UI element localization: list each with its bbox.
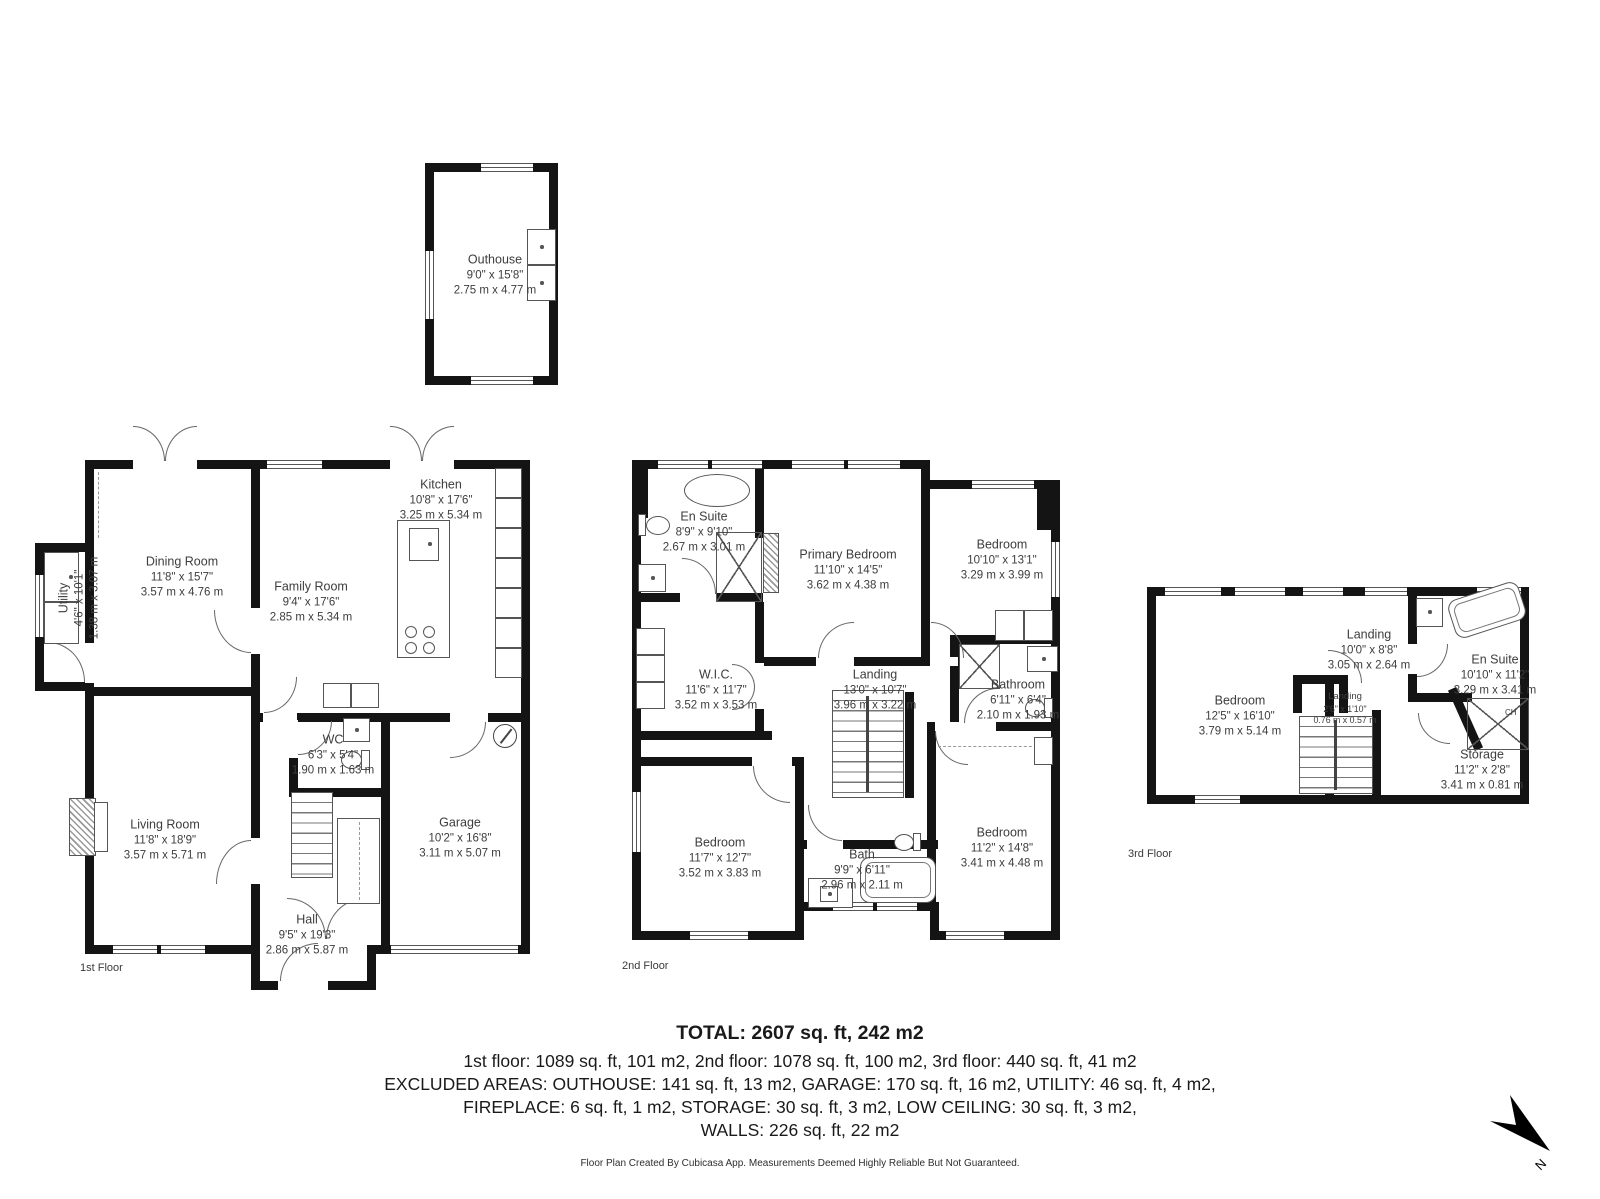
room-label-utility: Utility 4'6" x 10'1" 1.38 m x 3.07 m [56, 557, 103, 639]
room-dims-m: 3.41 m x 4.48 m [961, 856, 1043, 871]
room-label-landing: Landing 13'0" x 10'7" 3.96 m x 3.22 m [834, 667, 916, 714]
wall [755, 460, 764, 538]
room-dims-ft: 6'3" x 5'4" [308, 748, 358, 763]
room-dims-m: 3.57 m x 4.76 m [141, 585, 223, 600]
room-dims-m: 3.25 m x 5.34 m [400, 508, 482, 523]
room-name: Landing [1347, 627, 1392, 644]
room-dims-m: 2.75 m x 4.77 m [454, 283, 536, 298]
toilet-tank [913, 833, 921, 851]
room-dims-ft: 8'9" x 9'10" [676, 525, 733, 540]
stove-burner [405, 642, 417, 654]
door-opening [680, 593, 716, 602]
room-name: W.I.C. [699, 667, 733, 684]
third-floor-plan: Bedroom 12'5" x 16'10" 3.79 m x 5.14 m L… [1125, 570, 1545, 875]
door-arc [1417, 644, 1448, 677]
kitchen-cabinet [495, 498, 522, 528]
disclaimer-text: Floor Plan Created By Cubicasa App. Meas… [0, 1158, 1600, 1169]
door-opening [930, 657, 958, 666]
outhouse-plan: Outhouse 9'0" x 15'8" 2.75 m x 4.77 m [425, 163, 558, 385]
door-arc [808, 805, 842, 841]
wall [1147, 587, 1156, 804]
wall [85, 687, 260, 696]
room-dims-ft: 11'2" x 2'8" [1454, 763, 1510, 778]
stair-rail [1334, 720, 1337, 790]
room-label-bedroom-br: Bedroom 11'2" x 14'8" 3.41 m x 4.48 m [961, 825, 1043, 872]
room-dims-ft: 9'4" x 17'6" [283, 595, 340, 610]
summary-floors: 1st floor: 1089 sq. ft, 101 m2, 2nd floo… [0, 1050, 1600, 1073]
window [946, 931, 1004, 940]
room-dims-m: 3.29 m x 3.41 m [1454, 683, 1536, 698]
window [1195, 795, 1240, 804]
floor-label-1st: 1st Floor [80, 962, 123, 974]
floor-label-2nd: 2nd Floor [622, 960, 668, 972]
room-name: Living Room [130, 817, 199, 834]
room-dims-ft: 11'2" x 14'8" [971, 841, 1033, 856]
electric-meter-icon [493, 724, 517, 748]
kitchen-cabinet [495, 648, 522, 678]
door-opening [390, 460, 454, 469]
wall [632, 731, 772, 740]
door-arc [935, 731, 968, 765]
window [792, 460, 844, 469]
room-dims-m: 3.62 m x 4.38 m [807, 578, 889, 593]
wall [251, 460, 260, 722]
room-name: Bath [849, 847, 875, 864]
door-arc [264, 677, 297, 713]
room-label-ensuite: En Suite 8'9" x 9'10" 2.67 m x 3.01 m [663, 509, 745, 556]
room-dims-m: 1.38 m x 3.07 m [87, 557, 102, 639]
fireplace [69, 798, 96, 856]
kitchen-cabinet [495, 558, 522, 588]
room-dims-ft: 10'10" x 13'1" [967, 553, 1036, 568]
room-dims-m: 3.11 m x 5.07 m [419, 846, 501, 861]
door-opening [816, 657, 854, 666]
fireplace-hearth [94, 802, 108, 852]
room-dims-ft: 11'7" x 12'7" [689, 851, 751, 866]
room-name: WC [323, 732, 344, 749]
sink [1027, 646, 1058, 672]
window [658, 460, 708, 469]
window [481, 163, 533, 172]
room-dims-m: 2.85 m x 5.34 m [270, 610, 352, 625]
door-opening [251, 838, 260, 884]
room-dims-m: 3.52 m x 3.83 m [679, 866, 761, 881]
door-arc [818, 622, 854, 658]
wall [381, 713, 390, 954]
room-dims-m: 3.96 m x 3.22 m [834, 698, 916, 713]
compass: N [1490, 1095, 1570, 1190]
room-label-bedroom-bl: Bedroom 11'7" x 12'7" 3.52 m x 3.83 m [679, 835, 761, 882]
door-arc [1418, 713, 1450, 744]
stairs [291, 792, 333, 878]
door-opening [450, 713, 488, 722]
window [161, 945, 205, 954]
door-opening [133, 460, 197, 469]
window [1365, 587, 1407, 596]
toilet-tank [638, 514, 646, 536]
window [1235, 587, 1285, 596]
door-arc [422, 426, 454, 461]
kitchen-cabinet [495, 618, 522, 648]
room-label-garage: Garage 10'2" x 16'8" 3.11 m x 5.07 m [419, 815, 501, 862]
room-name: Outhouse [468, 252, 522, 269]
room-name: En Suite [680, 509, 727, 526]
summary-walls: WALLS: 226 sq. ft, 22 m2 [0, 1119, 1600, 1142]
closet [337, 818, 380, 904]
room-name: Garage [439, 815, 481, 832]
north-arrow-icon [1490, 1095, 1552, 1157]
ceiling-height-marker: CH [1505, 708, 1517, 717]
room-dims-ft: 9'9" x 6'11" [834, 863, 890, 878]
room-label-bathroom: Bathroom 6'11" x 6'4" 2.10 m x 1.93 m [977, 677, 1059, 724]
room-dims-ft: 10'10" x 11'2" [1461, 668, 1530, 683]
room-dims-ft: 4'6" x 10'1" [72, 570, 87, 627]
door-opening [752, 757, 792, 766]
low-ceiling-area [1467, 698, 1529, 750]
room-dims-m: 3.52 m x 3.53 m [675, 698, 757, 713]
room-dims-m: 2.86 m x 5.87 m [266, 943, 348, 958]
ceiling-break-line [98, 472, 99, 538]
room-name: Bedroom [977, 537, 1028, 554]
room-name: Utility [56, 583, 73, 614]
window [712, 460, 762, 469]
room-label-bedroom-tr: Bedroom 10'10" x 13'1" 3.29 m x 3.99 m [961, 537, 1043, 584]
compass-north-label: N [1532, 1156, 1549, 1173]
floor-plan-canvas: Outhouse 9'0" x 15'8" 2.75 m x 4.77 m [0, 0, 1600, 1199]
room-dims-m: 3.29 m x 3.99 m [961, 568, 1043, 583]
room-name: En Suite [1471, 652, 1518, 669]
door-arc [214, 610, 251, 653]
room-dims-m: 2.96 m x 2.11 m [821, 878, 903, 893]
room-label-living: Living Room 11'8" x 18'9" 3.57 m x 5.71 … [124, 817, 206, 864]
room-name: Hall [296, 912, 318, 929]
door-arc [450, 722, 486, 758]
door-opening [85, 643, 94, 683]
window-bench [323, 683, 351, 708]
room-name: Bathroom [991, 677, 1045, 694]
bathtub [684, 474, 750, 507]
window [1051, 542, 1060, 597]
wardrobe [995, 610, 1024, 641]
door-arc [216, 840, 251, 884]
wall [1037, 480, 1060, 530]
room-name: Bedroom [1215, 693, 1266, 710]
door-opening [251, 608, 260, 654]
room-dims-ft: 11'6" x 11'7" [685, 683, 746, 698]
window-bench [351, 683, 379, 708]
room-dims-ft: 10'8" x 17'6" [409, 493, 472, 508]
stove-burner [405, 626, 417, 638]
door-opening [935, 722, 962, 731]
window [877, 902, 917, 911]
room-name: Bedroom [977, 825, 1028, 842]
room-dims-m: 3.57 m x 5.71 m [124, 848, 206, 863]
kitchen-cabinet [495, 588, 522, 618]
room-name: Storage [1460, 747, 1504, 764]
room-label-bedroom3: Bedroom 12'5" x 16'10" 3.79 m x 5.14 m [1199, 693, 1281, 740]
door-arc [390, 426, 422, 461]
room-label-kitchen: Kitchen 10'8" x 17'6" 3.25 m x 5.34 m [400, 477, 482, 524]
room-label-dining: Dining Room 11'8" x 15'7" 3.57 m x 4.76 … [141, 554, 223, 601]
kitchen-cabinet [495, 528, 522, 558]
room-name: Primary Bedroom [799, 547, 896, 564]
window [113, 945, 157, 954]
room-dims-m: 2.10 m x 1.93 m [977, 708, 1059, 723]
room-label-storage: Storage 11'2" x 2'8" 3.41 m x 0.81 m [1441, 747, 1523, 794]
wall [85, 460, 94, 552]
window [848, 460, 900, 469]
first-floor-plan: Dining Room 11'8" x 15'7" 3.57 m x 4.76 … [35, 430, 535, 995]
window [267, 460, 322, 469]
room-label-primary: Primary Bedroom 11'10" x 14'5" 3.62 m x … [799, 547, 896, 594]
wall [632, 460, 648, 518]
room-dims-ft: 11'8" x 15'7" [151, 570, 213, 585]
room-dims-ft: 2'6" x 1'10" [1323, 704, 1366, 716]
room-dims-ft: 13'0" x 10'7" [843, 683, 906, 698]
room-dims-ft: 9'0" x 15'8" [467, 268, 524, 283]
room-label-landing3: Landing 10'0" x 8'8" 3.05 m x 2.64 m [1328, 627, 1410, 674]
room-name: Dining Room [146, 554, 218, 571]
room-name: Bedroom [695, 835, 746, 852]
sink [1416, 598, 1443, 627]
second-floor-plan: En Suite 8'9" x 9'10" 2.67 m x 3.01 m Pr… [620, 450, 1065, 985]
room-name: Kitchen [420, 477, 462, 494]
room-dims-m: 3.79 m x 5.14 m [1199, 724, 1281, 739]
room-dims-m: 1.90 m x 1.63 m [292, 763, 374, 778]
summary-excluded2: FIREPLACE: 6 sq. ft, 1 m2, STORAGE: 30 s… [0, 1096, 1600, 1119]
room-dims-ft: 11'10" x 14'5" [814, 563, 883, 578]
room-name: Landing [1328, 691, 1362, 704]
kitchen-sink [409, 528, 439, 561]
room-label-outhouse: Outhouse 9'0" x 15'8" 2.75 m x 4.77 m [454, 252, 536, 299]
room-label-family: Family Room 9'4" x 17'6" 2.85 m x 5.34 m [270, 579, 352, 626]
sink [638, 564, 666, 592]
window [1165, 587, 1221, 596]
room-label-wc: WC 6'3" x 5'4" 1.90 m x 1.63 m [292, 732, 374, 779]
wall [367, 945, 376, 990]
window [1303, 587, 1343, 596]
door-arc [165, 426, 197, 461]
room-dims-ft: 9'5" x 19'3" [279, 928, 336, 943]
window [35, 575, 44, 637]
room-label-ensuite3: En Suite 10'10" x 11'2" 3.29 m x 3.41 m [1454, 652, 1536, 699]
floor-label-3rd: 3rd Floor [1128, 848, 1172, 860]
room-dims-m: 3.41 m x 0.81 m [1441, 778, 1523, 793]
kitchen-cabinet [495, 468, 522, 498]
garage-door [391, 945, 518, 954]
closet [636, 655, 665, 682]
summary-excluded: EXCLUDED AREAS: OUTHOUSE: 141 sq. ft, 13… [0, 1073, 1600, 1096]
room-dims-ft: 10'0" x 8'8" [1341, 643, 1398, 658]
wall [521, 460, 530, 954]
window [425, 251, 434, 319]
room-label-landing-small: Landing 2'6" x 1'10" 0.76 m x 0.57 m [1313, 691, 1376, 727]
room-dims-m: 0.76 m x 0.57 m [1313, 715, 1376, 727]
room-dims-m: 3.05 m x 2.64 m [1328, 658, 1410, 673]
room-label-hall: Hall 9'5" x 19'3" 2.86 m x 5.87 m [266, 912, 348, 959]
room-dims-ft: 12'5" x 16'10" [1205, 709, 1274, 724]
room-dims-ft: 10'2" x 16'8" [428, 831, 491, 846]
room-label-bath: Bath 9'9" x 6'11" 2.96 m x 2.11 m [821, 847, 903, 894]
chimney [763, 533, 779, 593]
wardrobe [1034, 737, 1053, 765]
wall [921, 460, 930, 666]
door-arc [133, 426, 165, 461]
window [632, 792, 641, 852]
room-name: Landing [853, 667, 898, 684]
summary-total: TOTAL: 2607 sq. ft, 242 m2 [0, 1022, 1600, 1045]
room-dims-ft: 6'11" x 6'4" [990, 693, 1046, 708]
area-summary: TOTAL: 2607 sq. ft, 242 m2 1st floor: 10… [0, 1022, 1600, 1142]
room-dims-m: 2.67 m x 3.01 m [663, 540, 745, 555]
closet [636, 628, 665, 655]
room-name: Family Room [274, 579, 348, 596]
door-arc [753, 766, 790, 803]
room-label-wic: W.I.C. 11'6" x 11'7" 3.52 m x 3.53 m [675, 667, 757, 714]
door-arc [682, 558, 716, 594]
window [471, 376, 533, 385]
wall [251, 722, 260, 945]
window [972, 480, 1034, 489]
door-opening [278, 981, 328, 990]
closet [636, 682, 665, 709]
door-arc [48, 642, 85, 682]
room-dims-ft: 11'8" x 18'9" [134, 833, 196, 848]
wall [795, 757, 804, 906]
stove-burner [423, 626, 435, 638]
window [690, 931, 748, 940]
wardrobe [1024, 610, 1053, 641]
stove-burner [423, 642, 435, 654]
